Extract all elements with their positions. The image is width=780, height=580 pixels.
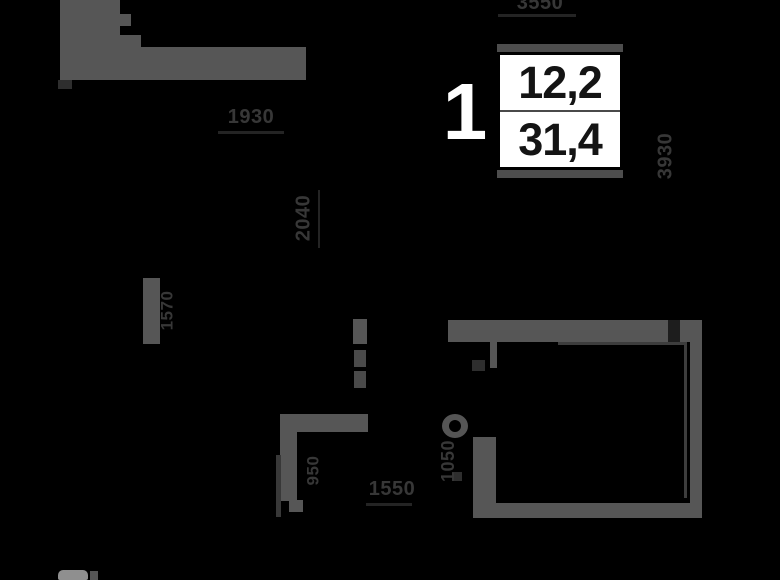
dim-left-mid-text: 1570 [159,290,176,330]
dim-mid-text: 1050 [439,440,457,482]
dim-bottom-text: 1550 [369,479,416,499]
wall-living-bottom [473,503,702,518]
dim-upper-left: 1930 [214,105,288,129]
dim-top-line [498,14,576,17]
dim-top-text: 3550 [517,0,564,13]
wall-dash-2 [354,371,366,388]
badge-room-count: 1 [440,80,490,144]
floor-plan-canvas: 3550 1930 2040 1570 3930 1050 950 1550 1… [0,0,780,580]
logo-fragment-bit [90,571,98,580]
dim-upper-left-line [218,131,284,134]
area-badge-box: 12,2 31,4 [497,52,623,170]
dim-top: 3550 [492,0,588,15]
wall-hall-stub [353,319,367,344]
wall-step [119,35,141,47]
badge-total-area: 31,4 [500,110,620,167]
dim-hall-text: 950 [305,455,322,485]
wall-top-left-block [60,0,120,47]
wall-hall-foot [289,500,303,512]
badge-wall-strip-top [497,44,623,52]
inner-wall-line-top [558,342,687,345]
wall-living-left-lower [473,437,496,517]
dim-mid: 1050 [434,436,462,486]
wall-hall-vertical [280,414,297,501]
wall-living-left-stub [490,342,497,368]
badge-wall-strip-bottom [497,170,623,178]
dim-left-upper-line [318,190,320,248]
badge-living-area: 12,2 [500,55,620,110]
dim-bottom: 1550 [352,476,432,502]
wall-notch [668,320,680,342]
dim-hall: 950 [303,444,323,496]
dim-right: 3930 [648,120,682,192]
dim-right-text: 3930 [655,133,675,180]
door-leaf [276,455,281,517]
wall-dash-1 [354,350,366,367]
wall-step-square [119,14,131,26]
wall-living-right [690,320,702,518]
dim-bottom-line [366,503,412,506]
dim-left-upper: 2040 [288,186,318,250]
inner-wall-line-right [684,342,687,498]
wall-top-bar [60,47,306,80]
wall-tick [58,80,72,89]
dim-left-upper-text: 2040 [293,195,313,242]
door-pivot-hole [449,420,461,432]
dim-left-mid: 1570 [156,280,178,340]
dim-upper-left-text: 1930 [228,107,275,127]
door-hinge-mark [472,360,485,371]
logo-fragment [58,570,88,580]
wall-living-top [448,320,702,342]
